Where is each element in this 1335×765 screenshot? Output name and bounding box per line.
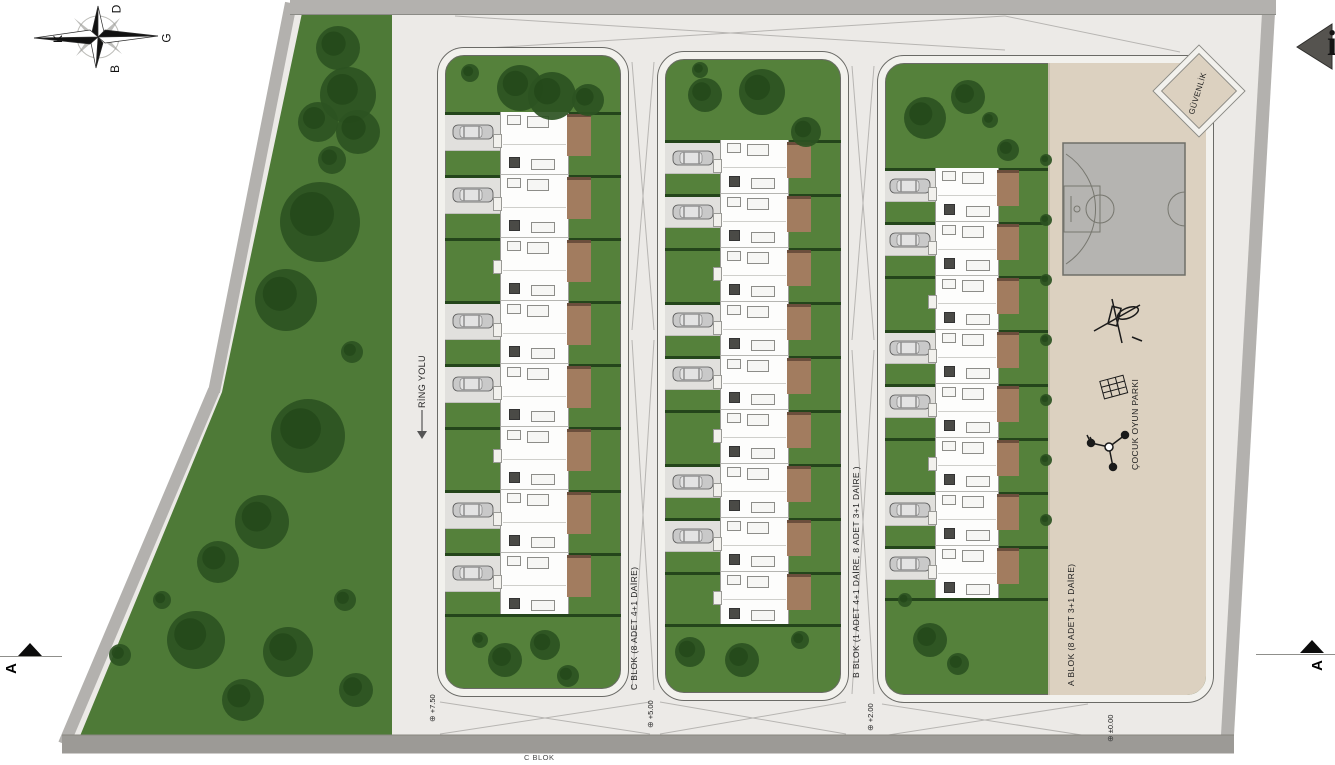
- block-b-label: B BLOK (1 ADET 4+1 DAİRE, 8 ADET 3+1 DAİ…: [851, 466, 861, 678]
- spinner-icon: [1085, 425, 1133, 473]
- section-marker-right: A: [1309, 660, 1326, 671]
- edge-text-fragment: i: [1327, 22, 1335, 64]
- block-c-label: C BLOK (8 ADET 4+1 DAİRE): [629, 567, 639, 690]
- elevation-marker: ⊕ +2.00: [866, 703, 875, 731]
- elevation-marker: ⊕ +7.50: [428, 694, 437, 722]
- benchmark-icon: ⊕: [428, 715, 437, 722]
- elevation-marker: ⊕ +5.00: [646, 700, 655, 728]
- section-arrow-icon: [18, 643, 42, 656]
- section-line: [1256, 654, 1335, 655]
- park-green-area: [80, 13, 392, 736]
- seesaw-slide-icon: [1092, 293, 1144, 349]
- section-arrow-icon: [1300, 640, 1324, 653]
- section-marker-left: A: [3, 663, 20, 674]
- section-line: [0, 656, 62, 657]
- elevation-marker: ⊕ ±0.00: [1106, 715, 1115, 742]
- block-a-label: A BLOK (8 ADET 3+1 DAİRE): [1066, 563, 1076, 686]
- parcel-block-b: [658, 52, 848, 700]
- playground-label: ÇOCUK OYUN PARKI: [1130, 379, 1140, 470]
- compass-west-label: B: [108, 65, 122, 73]
- parcel-block-c: [438, 48, 628, 696]
- benchmark-icon: ⊕: [1106, 735, 1115, 742]
- direction-arrow-icon: [414, 410, 430, 442]
- compass-south-label: G: [160, 33, 174, 42]
- benchmark-icon: ⊕: [866, 724, 875, 731]
- compass-rose-icon: [26, 0, 176, 78]
- benchmark-icon: ⊕: [646, 721, 655, 728]
- compass-east-label: D: [109, 5, 123, 14]
- climbing-net-icon: [1098, 372, 1130, 404]
- footer-block-label: C BLOK: [524, 753, 555, 762]
- site-plan: GÜVENLİK D K G B RİNG YOLU C BLOK (8 ADE…: [0, 0, 1335, 765]
- ring-road-label: RİNG YOLU: [417, 355, 427, 408]
- basketball-court: [1062, 142, 1186, 276]
- compass-north-label: K: [51, 35, 65, 43]
